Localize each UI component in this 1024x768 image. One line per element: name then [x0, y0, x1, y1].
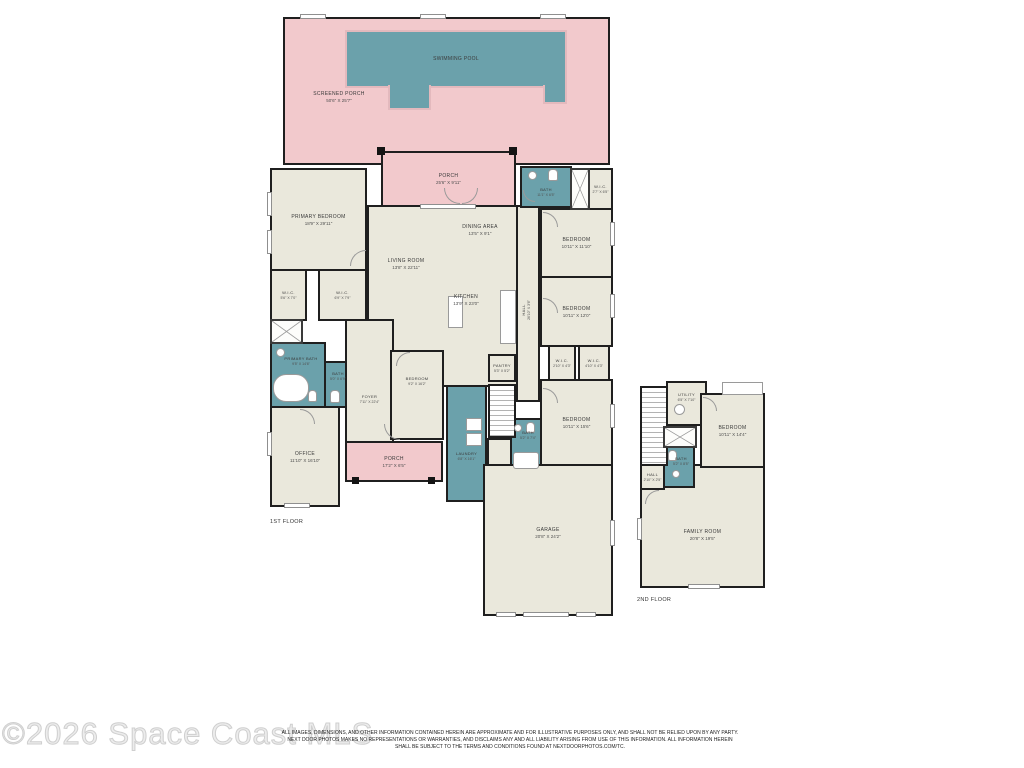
closet-x-ne: [570, 168, 590, 210]
swimming-pool-step-right: [543, 85, 567, 104]
room-label-bedroom-ne: BEDROOM 10'11" X 11'10": [562, 237, 592, 249]
window: [267, 192, 272, 216]
disclaimer-line-1: ALL IMAGES, DIMENSIONS, AND OTHER INFORM…: [278, 730, 742, 737]
bathtub: [273, 374, 309, 402]
room-wic-primary-left: W.I.C. 5'6" X 7'0": [270, 269, 307, 321]
window: [576, 612, 596, 617]
sink: [528, 171, 537, 180]
room-pantry: PANTRY 5'3" X 5'2": [488, 354, 516, 382]
room-label-porch-front: PORCH 17'2" X 6'5": [383, 456, 406, 468]
washer: [466, 418, 482, 431]
room-label-bath-ne: BATH 11'1" X 6'5": [537, 187, 555, 197]
room-label-primary-bath: PRIMARY BATH 9'5" X 14'6": [280, 356, 322, 366]
swimming-pool-step-left: [388, 85, 431, 110]
linen-closet-x: [270, 319, 303, 344]
disclaimer-line-3: SHALL BE SUBJECT TO THE TERMS AND CONDIT…: [278, 744, 742, 751]
window: [267, 230, 272, 254]
porch-post: [377, 147, 385, 155]
room-wic-e-left: W.I.C. 2'10" X 4'3": [548, 345, 576, 381]
window: [267, 432, 272, 456]
room-label-kitchen: KITCHEN 13'9" X 23'0": [436, 294, 496, 306]
room-wic-e-right: W.I.C. 4'10" X 4'3": [578, 345, 610, 381]
window: [610, 404, 615, 428]
room-label-laundry: LAUNDRY 6'8" X 16'1": [456, 451, 477, 461]
room-label-porch-rear: PORCH 25'6" X 9'11": [436, 173, 461, 185]
room-label-living-room: LIVING ROOM 13'8" X 22'11": [376, 258, 436, 270]
window: [637, 518, 642, 540]
room-label-hall-main: HALL 26'10" X 3'6": [521, 264, 535, 356]
room-porch-front: PORCH 17'2" X 6'5": [345, 441, 443, 482]
room-label-hall-2f: HALL 2'10" X 2'5": [644, 472, 662, 482]
closet-x-2f: [663, 426, 697, 448]
room-label-bedroom-2f: BEDROOM 10'11" X 14'4": [719, 425, 747, 437]
room-label-garage: GARAGE 20'8" X 24'2": [535, 527, 560, 539]
room-label-pantry: PANTRY 5'3" X 5'2": [493, 363, 511, 373]
window: [420, 14, 446, 19]
room-label-bedroom-se: BEDROOM 10'11" X 15'6": [563, 417, 591, 429]
room-label-dining-area: DINING AREA 13'5" X 9'1": [450, 224, 510, 236]
window: [610, 520, 615, 546]
room-label-utility: UTILITY 6'5" X 7'10": [678, 392, 696, 402]
room-label-bath-se: BATH 5'2" X 7'4": [515, 430, 541, 440]
sink: [672, 470, 680, 478]
window: [610, 222, 615, 246]
floor-plan-canvas: SCREENED PORCH 50'6" X 25'7" SWIMMING PO…: [0, 0, 1024, 768]
porch-post: [352, 477, 359, 484]
room-label-foyer: FOYER 7'11" X 22'4": [360, 394, 380, 404]
window: [688, 584, 720, 589]
toilet: [308, 390, 317, 402]
room-label-family-room: FAMILY ROOM 20'8" X 19'5": [684, 529, 722, 541]
stairs-main: [488, 384, 516, 438]
room-label-bedroom-center: BEDROOM 9'2" X 16'2": [406, 376, 429, 386]
floor2-label: 2ND FLOOR: [637, 597, 671, 603]
room-label-wic-e-right: W.I.C. 4'10" X 4'3": [585, 358, 603, 368]
room-wic-ne: W.I.C. 2'7" X 6'5": [588, 168, 613, 210]
room-hall-2f: HALL 2'10" X 2'5": [640, 464, 665, 490]
room-label-wic-primary-right: W.I.C. 6'9" X 7'9": [335, 290, 351, 300]
room-label-wic-ne: W.I.C. 2'7" X 6'5": [593, 184, 609, 194]
disclaimer-line-2: NEXT DOOR PHOTOS MAKES NO REPRESENTATION…: [278, 737, 742, 744]
water-heater: [674, 404, 685, 415]
window: [540, 14, 566, 19]
floor1-label: 1ST FLOOR: [270, 519, 303, 525]
room-label-office: OFFICE 11'10" X 16'10": [290, 451, 320, 463]
disclaimer-text: ALL IMAGES, DIMENSIONS, AND OTHER INFORM…: [278, 730, 742, 751]
room-label-wic-primary-left: W.I.C. 5'6" X 7'0": [281, 290, 297, 300]
bathtub: [513, 452, 539, 469]
garage-door-opening: [523, 612, 569, 617]
room-label-primary-bedroom: PRIMARY BEDROOM 18'9" X 29'11": [291, 214, 345, 226]
dryer: [466, 433, 482, 446]
porch-post: [509, 147, 517, 155]
room-label-bath-2f: BATH 5'2" X 8'5": [668, 456, 694, 466]
room-garage: GARAGE 20'8" X 24'2": [483, 464, 613, 616]
window: [496, 612, 516, 617]
window: [300, 14, 326, 19]
toilet: [548, 169, 558, 181]
sliding-door: [420, 204, 476, 209]
toilet: [330, 390, 340, 403]
porch-post: [428, 477, 435, 484]
kitchen-counter: [500, 290, 516, 344]
window: [610, 294, 615, 318]
room-wic-primary-right: W.I.C. 6'9" X 7'9": [318, 269, 367, 321]
room-label-screened-porch: SCREENED PORCH 50'6" X 25'7": [299, 91, 379, 103]
room-label-bedroom-e: BEDROOM 10'11" X 12'0": [563, 306, 591, 318]
room-label-swimming-pool: SWIMMING POOL: [426, 56, 486, 62]
window: [284, 503, 310, 508]
room-label-bath-hall: BATH 5'0" X 6'9": [327, 371, 349, 381]
closet-2f: [722, 382, 763, 395]
room-label-wic-e-left: W.I.C. 2'10" X 4'3": [553, 358, 571, 368]
